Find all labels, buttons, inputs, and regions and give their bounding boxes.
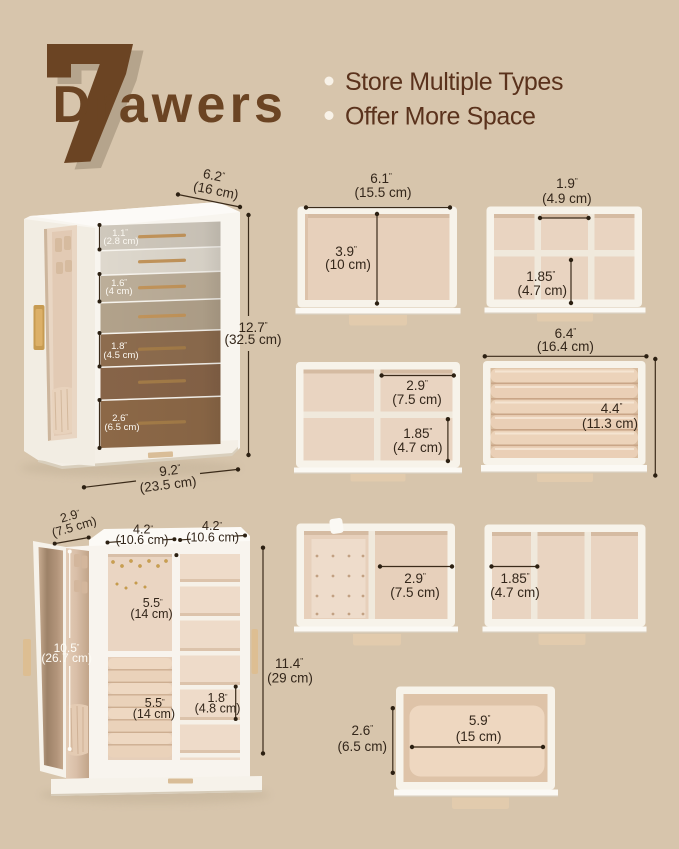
- svg-text:5.9": 5.9": [469, 713, 491, 728]
- svg-text:2.9": 2.9": [404, 571, 426, 586]
- svg-text:(14 cm): (14 cm): [130, 607, 172, 621]
- svg-text:1.85": 1.85": [500, 571, 529, 586]
- svg-text:11.4": 11.4": [275, 656, 303, 671]
- svg-text:(4.7 cm): (4.7 cm): [490, 585, 540, 600]
- svg-text:(14 cm): (14 cm): [133, 707, 175, 721]
- svg-text:(15.5 cm): (15.5 cm): [354, 185, 411, 200]
- svg-text:6.1": 6.1": [370, 171, 392, 186]
- svg-text:(7.5 cm): (7.5 cm): [392, 392, 442, 407]
- svg-text:(6.5 cm): (6.5 cm): [104, 422, 139, 433]
- svg-text:(15 cm): (15 cm): [456, 729, 502, 744]
- svg-text:(32.5 cm): (32.5 cm): [224, 332, 281, 347]
- svg-text:(7.5 cm): (7.5 cm): [390, 585, 440, 600]
- svg-text:(11.3 cm): (11.3 cm): [582, 416, 638, 431]
- svg-text:(26.7 cm): (26.7 cm): [41, 651, 92, 665]
- svg-text:(4.7 cm): (4.7 cm): [518, 283, 568, 298]
- svg-text:1.9": 1.9": [556, 176, 578, 191]
- svg-text:2.6": 2.6": [351, 723, 373, 738]
- svg-text:Drawers: Drawers: [53, 76, 288, 134]
- svg-text:(6.5 cm): (6.5 cm): [338, 739, 388, 754]
- svg-text:(2.8 cm): (2.8 cm): [103, 236, 138, 247]
- svg-text:4.4": 4.4": [601, 401, 623, 416]
- svg-text:Store Multiple Types: Store Multiple Types: [345, 68, 563, 96]
- svg-text:(4 cm): (4 cm): [105, 286, 132, 297]
- svg-text:(4.9 cm): (4.9 cm): [542, 191, 592, 206]
- svg-text:(16.4 cm): (16.4 cm): [537, 339, 594, 354]
- svg-text:2.9": 2.9": [406, 378, 428, 393]
- svg-text:(10.6 cm): (10.6 cm): [186, 531, 239, 545]
- svg-text:(4.5 cm): (4.5 cm): [103, 350, 138, 361]
- svg-text:(10 cm): (10 cm): [325, 257, 371, 272]
- svg-text:1.85": 1.85": [403, 426, 432, 441]
- svg-text:1.85": 1.85": [526, 269, 555, 284]
- svg-text:(4.8 cm): (4.8 cm): [195, 702, 241, 716]
- svg-text:(10.6 cm): (10.6 cm): [116, 533, 169, 547]
- svg-text:(29 cm): (29 cm): [267, 671, 313, 686]
- svg-text:Offer More Space: Offer More Space: [345, 103, 535, 131]
- svg-text:(4.7 cm): (4.7 cm): [393, 440, 443, 455]
